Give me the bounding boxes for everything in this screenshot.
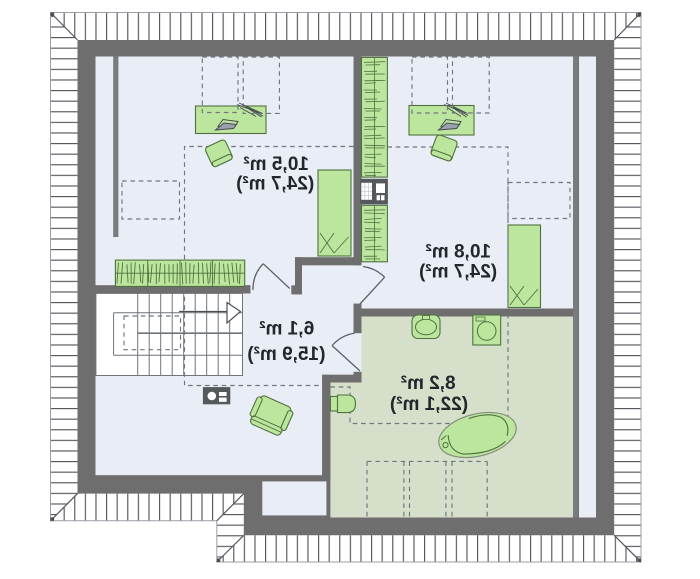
svg-text:(24,7 m²): (24,7 m²)	[419, 261, 497, 282]
svg-text:(22,1 m²): (22,1 m²)	[390, 394, 468, 415]
svg-text:10,8 m²: 10,8 m²	[426, 242, 491, 263]
svg-text:(15,9 m²): (15,9 m²)	[247, 344, 325, 365]
svg-text:(24,7 m²): (24,7 m²)	[236, 173, 314, 194]
svg-text:10,5 m²: 10,5 m²	[243, 154, 308, 175]
svg-text:8,2 m²: 8,2 m²	[401, 373, 456, 394]
svg-text:6,1 m²: 6,1 m²	[259, 318, 314, 339]
